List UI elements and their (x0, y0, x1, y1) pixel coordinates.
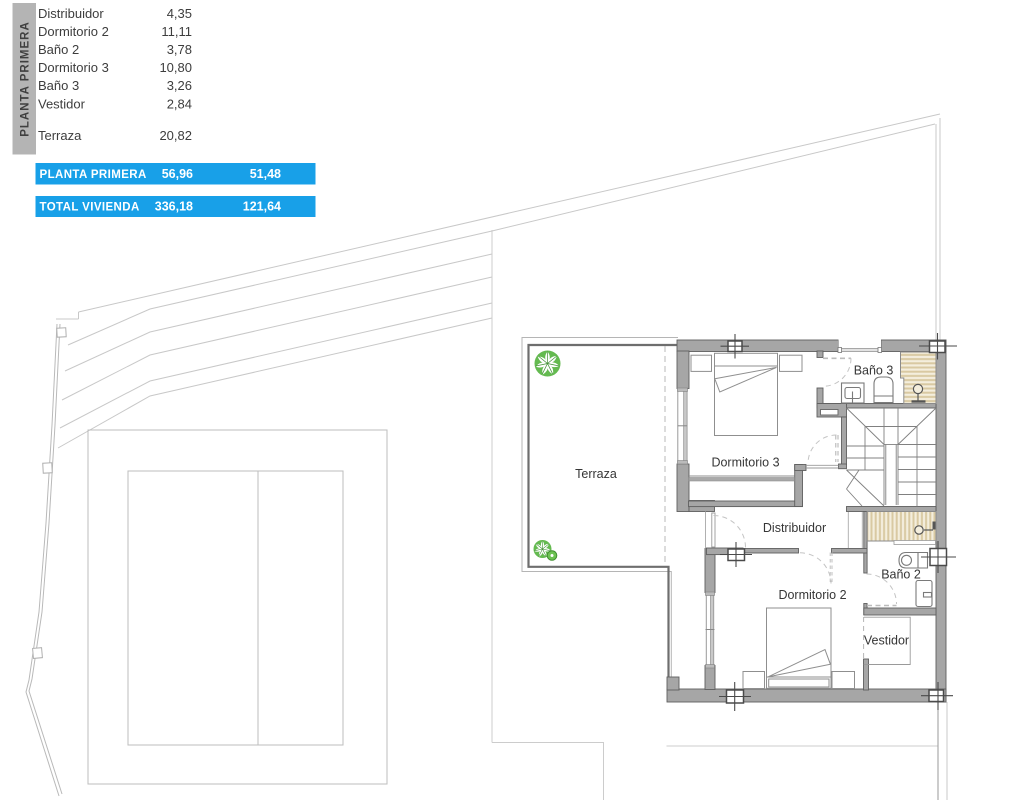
svg-text:TOTAL VIVIENDA: TOTAL VIVIENDA (40, 202, 140, 214)
svg-text:2,84: 2,84 (167, 97, 192, 112)
svg-text:Baño 3: Baño 3 (38, 78, 79, 93)
svg-text:PLANTA PRIMERA: PLANTA PRIMERA (40, 169, 147, 181)
svg-text:Distribuidor: Distribuidor (763, 521, 826, 535)
svg-text:Baño 3: Baño 3 (854, 364, 894, 378)
svg-text:121,64: 121,64 (243, 200, 281, 214)
svg-text:Vestidor: Vestidor (864, 634, 909, 648)
svg-text:3,78: 3,78 (167, 42, 192, 57)
svg-text:Distribuidor: Distribuidor (38, 6, 104, 21)
svg-text:10,80: 10,80 (159, 60, 192, 75)
svg-text:Terraza: Terraza (38, 128, 82, 143)
svg-text:3,26: 3,26 (167, 78, 192, 93)
svg-text:Dormitorio 2: Dormitorio 2 (38, 24, 109, 39)
svg-text:Dormitorio 2: Dormitorio 2 (778, 588, 846, 602)
svg-text:56,96: 56,96 (162, 167, 193, 181)
svg-text:11,11: 11,11 (161, 24, 192, 39)
svg-text:Dormitorio 3: Dormitorio 3 (711, 456, 779, 470)
svg-text:20,82: 20,82 (159, 128, 192, 143)
svg-text:Baño 2: Baño 2 (38, 42, 79, 57)
svg-text:51,48: 51,48 (250, 167, 281, 181)
svg-text:Baño 2: Baño 2 (881, 568, 921, 582)
svg-text:336,18: 336,18 (155, 200, 193, 214)
svg-text:Terraza: Terraza (575, 467, 617, 481)
svg-text:PLANTA PRIMERA: PLANTA PRIMERA (20, 21, 32, 137)
svg-text:Vestidor: Vestidor (38, 97, 86, 112)
svg-text:Dormitorio 3: Dormitorio 3 (38, 60, 109, 75)
svg-text:4,35: 4,35 (167, 6, 192, 21)
